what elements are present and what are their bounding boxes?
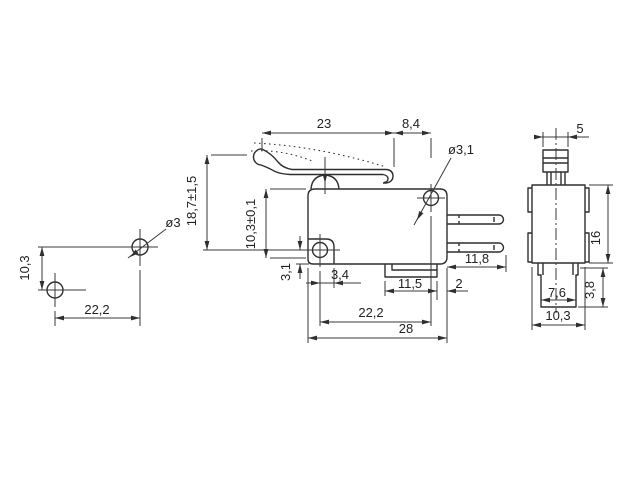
dim-arrow [131,316,140,321]
dim-arrow [311,281,320,286]
dim-horizontal-pitch: 22,2 [55,302,140,320]
dim-hole-to-step: 3,4 [306,267,361,288]
dim-label: 11,5 [398,276,422,291]
dim-label: 2 [455,276,462,291]
dim-arrow [394,131,403,136]
dim-hole-pitch: 22,2 [320,305,431,324]
dim-label: 8,4 [402,116,420,131]
dim-arrow [601,268,606,277]
dim-arrow [205,155,210,164]
dim-arrow [385,289,394,294]
dim-arrow [422,131,431,136]
dim-arrow [323,174,328,183]
dim-arrow [497,265,506,270]
dim-terminal-length: 11,8 [447,251,506,272]
dim-arrow [417,211,423,220]
dim-arrow [438,336,447,341]
dim-arrow [262,131,271,136]
dim-arrow [447,265,456,270]
dim-arrow [532,323,541,328]
dim-corner-hole: ø3,1 [414,142,474,225]
dim-arrow [264,189,269,198]
microswitch-technical-drawing: 10,3 22,2 ø3 [0,0,640,480]
side-body-outline [532,185,585,263]
dim-arrow [534,135,543,140]
dim-arrow [298,241,303,250]
dim-label: 16 [588,231,603,245]
dim-bottom-terminal-height: 3,8 [578,268,608,307]
dim-arrow [264,249,269,258]
dim-label: 10,3±0,1 [243,199,258,250]
drawing-canvas: 10,3 22,2 ø3 [0,0,640,480]
dim-label: 22,2 [358,305,383,320]
dim-body-height-ref: 10,3±0,1 [243,189,306,258]
view-mounting-holes: 10,3 22,2 ø3 [17,215,181,326]
dim-label: 3,4 [331,267,349,282]
dim-arrow [606,185,611,194]
lever-arm [251,143,393,183]
dim-label: ø3 [165,215,180,230]
dim-arrow [606,254,611,263]
dim-label: 10,3 [545,308,570,323]
dim-arrow [298,264,303,273]
dim-arrow [576,323,585,328]
dim-label: 22,2 [84,302,109,317]
dim-arrow [40,281,45,290]
dim-label: 28 [399,321,413,336]
dim-label: 3,1 [278,263,293,281]
dim-plunger-width: 5 [534,121,589,147]
dim-label: 10,3 [17,255,32,280]
dim-label: 7,6 [548,285,566,300]
dim-label: 18,7±1,5 [184,176,199,227]
dim-arrow [428,289,437,294]
dim-label: 23 [317,116,331,131]
dim-arrow [205,241,210,250]
dim-label: 11,8 [465,251,489,266]
dim-hole-to-bottom: 3,1 [278,236,309,281]
dim-bottom-tab-gap: 2 [447,276,468,293]
view-side: 5 16 3,8 7,6 10,3 [528,121,613,330]
dim-free-position-height: 18,7±1,5 [184,155,247,250]
dim-label: 5 [576,121,583,136]
dim-arrow [40,247,45,256]
dim-arrow [567,298,576,303]
switch-body-outline [308,189,447,264]
dim-arrow [320,320,329,325]
dim-label: 3,8 [582,281,597,299]
dim-lever-rear: 8,4 [394,116,431,135]
dim-bottom-tab-length: 11,5 [385,276,437,300]
dim-arrow [422,320,431,325]
dim-bottom-terminal-width: 7,6 [541,285,576,302]
dim-arrow [385,131,394,136]
dim-body-height: 16 [588,185,613,263]
dim-vertical-pitch: 10,3 [17,247,44,290]
dim-arrow [601,298,606,307]
side-flanges [528,188,589,262]
dim-label: ø3,1 [448,142,474,157]
dim-arrow [55,316,64,321]
dim-arrow [308,336,317,341]
view-front: 23 8,4 ø3,1 18,7±1,5 10,3±0,1 [184,116,506,343]
dim-hole-diameter: ø3 [128,215,181,258]
terminal-pin-upper [447,215,504,224]
